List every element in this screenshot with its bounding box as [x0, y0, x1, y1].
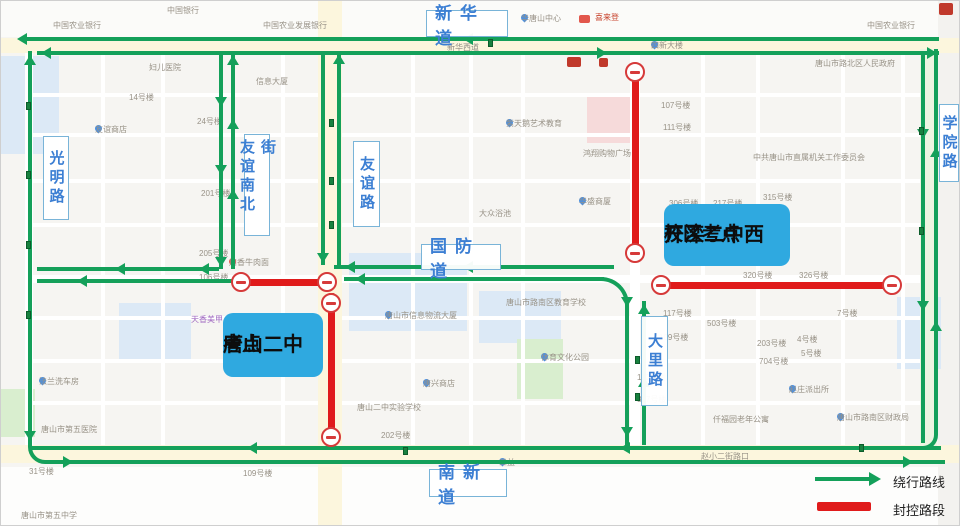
detour-arrow-icon — [115, 263, 125, 275]
poi-text: 109号楼 — [243, 469, 272, 478]
poi-text: 111号楼 — [663, 123, 691, 132]
poi-text: 赵庄派出所 — [789, 385, 829, 394]
detour-arrow-icon — [317, 253, 329, 263]
poi-text: 中国农业银行 — [53, 21, 101, 30]
detour-route-guofangdao-west-1 — [37, 267, 219, 271]
road-label-dalilu: 大里路 — [641, 316, 668, 406]
poi-text: 315号楼 — [763, 193, 792, 202]
poi-text: 320号楼 — [743, 271, 772, 280]
detour-arrow-icon — [215, 257, 227, 267]
detour-arrow-icon — [77, 275, 87, 287]
legend-closed-line — [817, 502, 871, 511]
detour-route-youyilu-north — [337, 51, 341, 265]
detour-route-youyi-nanbei-north — [231, 51, 235, 269]
poi-text: 唐山市路北区人民政府 — [815, 59, 895, 68]
detour-arrow-icon — [41, 47, 51, 59]
poi-text: 唐兴商店 — [423, 379, 455, 388]
no-entry-icon — [651, 275, 671, 295]
transit-stop-icon — [919, 127, 924, 135]
exam-site-name-line2: 考点 — [223, 333, 261, 357]
detour-arrow-icon — [869, 472, 881, 486]
legend-detour-label: 绕行路线 — [893, 472, 945, 491]
poi-text: 四新大楼 — [651, 41, 683, 50]
transit-stop-icon — [859, 444, 864, 452]
poi-text: 唐山市路南区财政局 — [837, 413, 909, 422]
closed-road-guofangdao-east-segment — [660, 282, 893, 289]
transit-stop-icon — [26, 311, 31, 319]
poi-text: 31号楼 — [29, 467, 54, 476]
transit-stop-icon — [329, 119, 334, 127]
detour-arrow-icon — [24, 431, 36, 441]
road-label-nanxindao: 南新道 — [429, 469, 507, 497]
exam-site-name-line2: 校区考点 — [664, 223, 740, 247]
transit-stop-icon — [635, 393, 640, 401]
poi-text: 202号楼 — [381, 431, 410, 440]
poi-text: 14号楼 — [129, 93, 154, 102]
poi-text: 中共唐山市直属机关工作委员会 — [753, 153, 865, 162]
detour-arrow-icon — [199, 263, 209, 275]
poi-text: 704号楼 — [759, 357, 788, 366]
detour-arrow-icon — [333, 54, 345, 64]
transit-stop-icon — [329, 221, 334, 229]
no-entry-icon — [625, 243, 645, 263]
detour-arrow-icon — [215, 97, 227, 107]
detour-route-xinhuadao-east — [37, 51, 939, 55]
detour-arrow-icon — [17, 33, 27, 45]
poi-text: 203号楼 — [757, 339, 786, 348]
detour-route-guofangdao-west-2 — [37, 279, 234, 283]
exam-site-kailuan-no2-west: 开滦二中西 校区考点 — [664, 204, 790, 266]
poi-text: 5号楼 — [801, 349, 821, 358]
poi-text: 喜来登 — [595, 13, 619, 22]
road-label-guofangdao: 国防道 — [421, 244, 501, 270]
detour-route-youyi-nanbei-south — [219, 51, 223, 269]
detour-route-xueyuanlu-south — [921, 51, 925, 443]
poi-text: 中国农业发展银行 — [263, 21, 327, 30]
poi-text: 川香牛肉面 — [229, 258, 269, 267]
poi-text: 唐山市信息物流大厦 — [385, 311, 457, 320]
detour-arrow-icon — [597, 47, 607, 59]
road-label-xueyuanlu: 学院路 — [939, 104, 959, 182]
detour-arrow-icon — [621, 297, 633, 307]
exam-site-tangshan-no2: 唐山二中 考点 — [223, 313, 323, 377]
detour-arrow-icon — [917, 301, 929, 311]
closed-road-dalilu-north-segment — [632, 71, 639, 254]
detour-route-xueyuanlu-north — [934, 49, 938, 433]
poi-text: 唐山二中实验学校 — [357, 403, 421, 412]
detour-arrow-icon — [621, 427, 633, 437]
detour-arrow-icon — [638, 304, 650, 314]
poi-text: 201号楼 — [201, 189, 230, 198]
poi-text: 大众浴池 — [479, 209, 511, 218]
poi-text: 仟福园老年公寓 — [713, 415, 769, 424]
detour-arrow-icon — [930, 321, 942, 331]
poi-text: 华唐山中心 — [521, 14, 561, 23]
transit-stop-icon — [26, 102, 31, 110]
transit-stop-icon — [26, 171, 31, 179]
detour-route-dalilu-south — [625, 303, 629, 445]
poi-text: 7号楼 — [837, 309, 857, 318]
poi-text: 中国农业银行 — [867, 21, 915, 30]
poi-text: 天香美甲 — [191, 315, 223, 324]
no-entry-icon — [317, 272, 337, 292]
transit-stop-icon — [329, 177, 334, 185]
detour-arrow-icon — [227, 55, 239, 65]
road-label-guangminglu: 光明路 — [43, 136, 69, 220]
poi-text: 中国银行 — [167, 6, 199, 15]
poi-text: 107号楼 — [661, 101, 690, 110]
detour-route-youyilu-south — [321, 51, 325, 265]
poi-text: 503号楼 — [707, 319, 736, 328]
legend-detour-line — [815, 477, 871, 481]
transit-stop-icon — [403, 447, 408, 455]
poi-text: 妇儿医院 — [149, 63, 181, 72]
poi-text: 法兰洗车房 — [39, 377, 79, 386]
road-label-youyi-nanbei-jie: 友谊南北街 — [244, 134, 270, 236]
transit-stop-icon — [26, 241, 31, 249]
detour-arrow-icon — [227, 119, 239, 129]
poi-text: 唐山市路南区教育学校 — [506, 298, 586, 307]
detour-arrow-icon — [215, 165, 227, 175]
traffic-control-map: 中国农业银行中国银行中国农业发展银行华唐山中心喜来登中国农业银行唐山市路北区人民… — [0, 0, 960, 526]
detour-arrow-icon — [355, 273, 365, 285]
detour-arrow-icon — [927, 47, 937, 59]
legend-closed-label: 封控路段 — [893, 500, 945, 519]
transit-stop-icon — [635, 356, 640, 364]
no-entry-icon — [231, 272, 251, 292]
poi-text: 信息大厦 — [256, 77, 288, 86]
poi-text: 鸿翔购物广场 — [583, 149, 631, 158]
poi-text: 唐山市第五医院 — [41, 425, 97, 434]
detour-arrow-icon — [345, 261, 355, 273]
no-entry-icon — [321, 293, 341, 313]
no-entry-icon — [625, 62, 645, 82]
no-entry-icon — [882, 275, 902, 295]
poi-text: 326号楼 — [799, 271, 828, 280]
detour-route-nanxindao-west — [31, 446, 941, 450]
road-label-xinhuadao: 新华道 — [426, 10, 508, 37]
road-label-youyilu: 友谊路 — [353, 141, 380, 227]
detour-arrow-icon — [24, 55, 36, 65]
poi-text: 唐山市第五中学 — [21, 511, 77, 520]
poi-text: 体育文化公园 — [541, 353, 589, 362]
closed-road-youyilu-south-segment — [328, 293, 335, 435]
poi-text: 友谊商店 — [95, 125, 127, 134]
detour-arrow-icon — [903, 456, 913, 468]
poi-text: 紫天鹅艺术教育 — [506, 119, 562, 128]
detour-arrow-icon — [247, 442, 257, 454]
detour-arrow-icon — [620, 442, 630, 454]
no-entry-icon — [321, 427, 341, 447]
detour-arrow-icon — [63, 456, 73, 468]
transit-stop-icon — [919, 227, 924, 235]
poi-text: 华盛商厦 — [579, 197, 611, 206]
poi-text: 4号楼 — [797, 335, 817, 344]
